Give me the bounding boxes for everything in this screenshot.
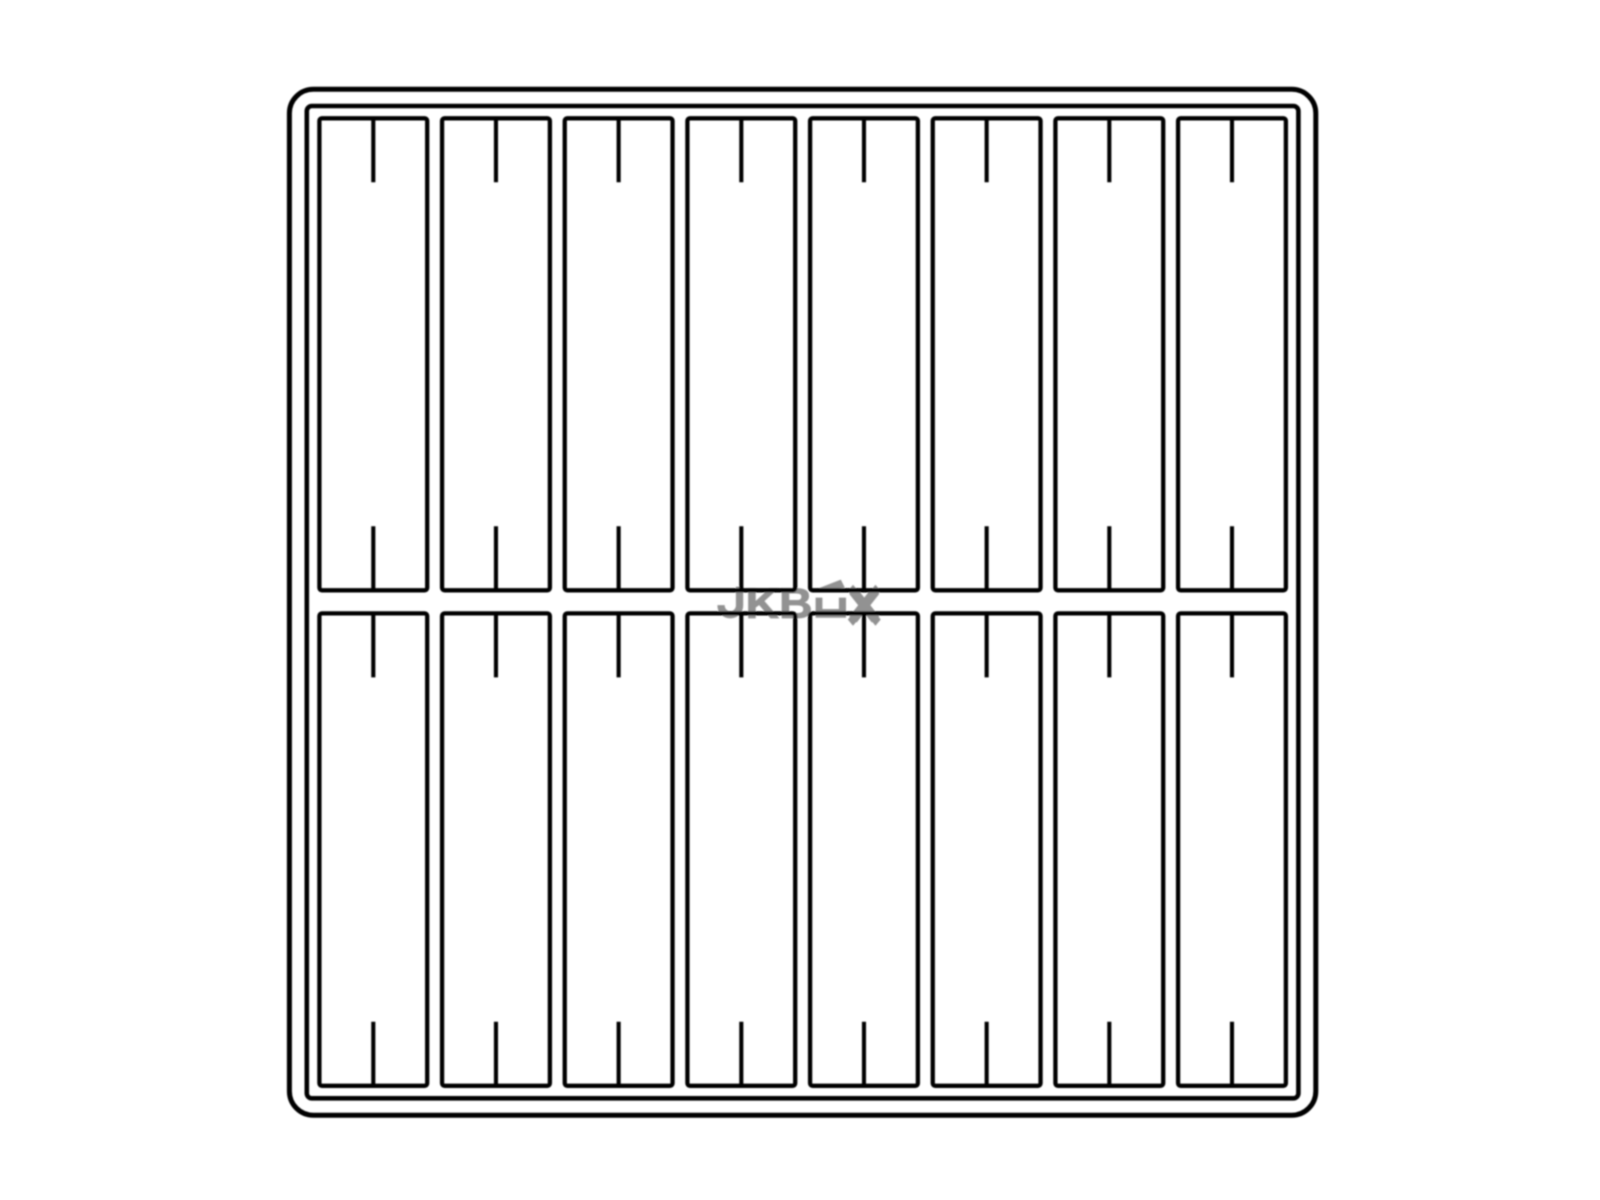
svg-text:KB: KB [746,580,813,628]
